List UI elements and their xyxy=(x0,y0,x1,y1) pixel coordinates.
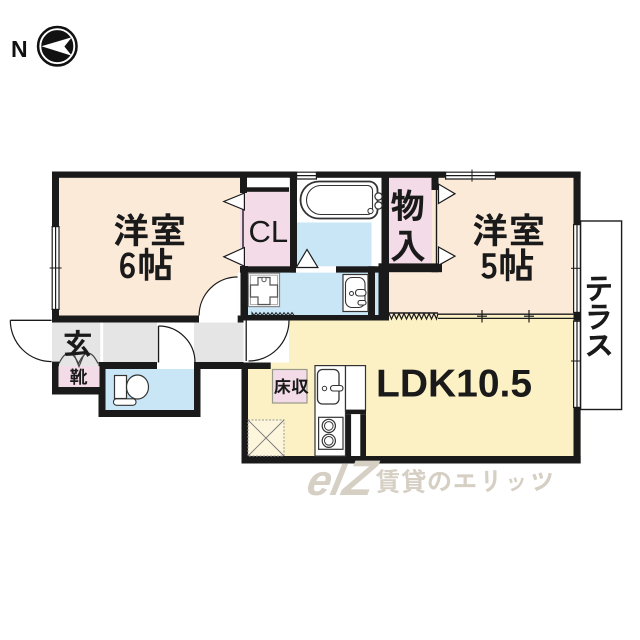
svg-text:elZ: elZ xyxy=(303,450,383,506)
svg-text:CL: CL xyxy=(249,214,289,249)
svg-text:N: N xyxy=(11,36,28,62)
svg-text:LDK10.5: LDK10.5 xyxy=(376,363,532,406)
